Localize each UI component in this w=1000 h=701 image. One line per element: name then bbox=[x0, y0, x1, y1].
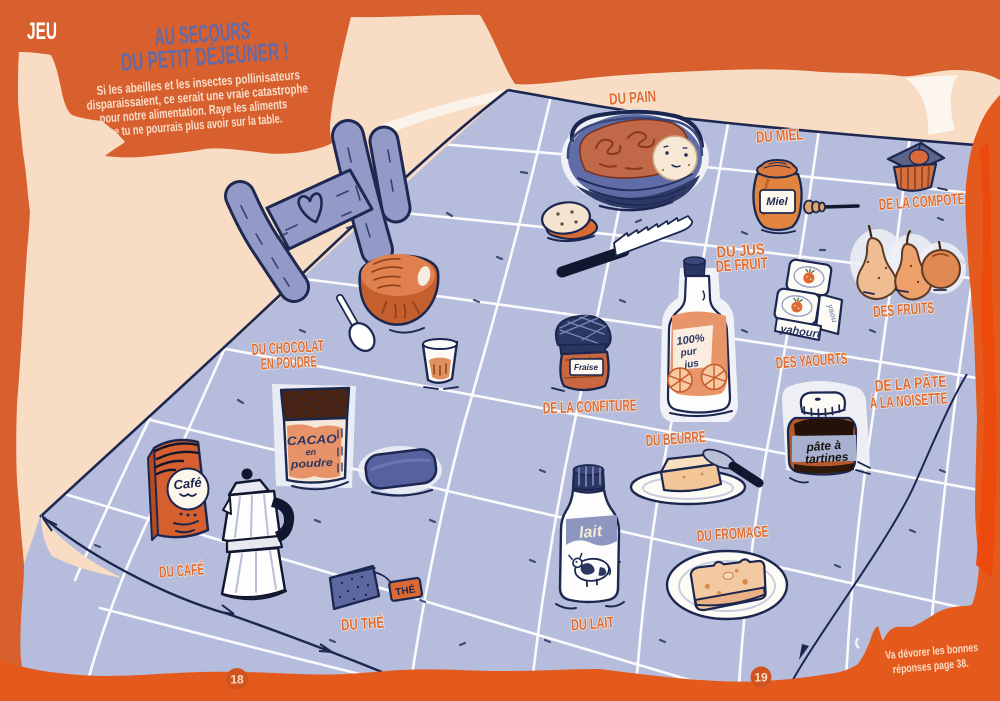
svg-text:poudre: poudre bbox=[289, 457, 333, 471]
svg-text:en: en bbox=[305, 447, 317, 458]
svg-text:JEU: JEU bbox=[27, 18, 57, 45]
svg-text:DU LAIT: DU LAIT bbox=[571, 615, 615, 635]
svg-text:EN POUDRE: EN POUDRE bbox=[260, 354, 317, 374]
svg-text:Fraise: Fraise bbox=[574, 363, 599, 372]
svg-text:19: 19 bbox=[754, 671, 768, 685]
svg-text:DU MIEL: DU MIEL bbox=[756, 126, 804, 146]
svg-text:lait: lait bbox=[578, 523, 603, 542]
svg-text:CACAO: CACAO bbox=[286, 432, 337, 449]
svg-text:DU PAIN: DU PAIN bbox=[609, 88, 657, 108]
svg-text:Miel: Miel bbox=[766, 196, 788, 208]
svg-text:DE LA CONFITURE: DE LA CONFITURE bbox=[543, 397, 638, 417]
svg-text:DE FRUIT: DE FRUIT bbox=[715, 255, 768, 276]
svg-text:18: 18 bbox=[230, 673, 244, 687]
svg-text:Café: Café bbox=[173, 475, 203, 493]
